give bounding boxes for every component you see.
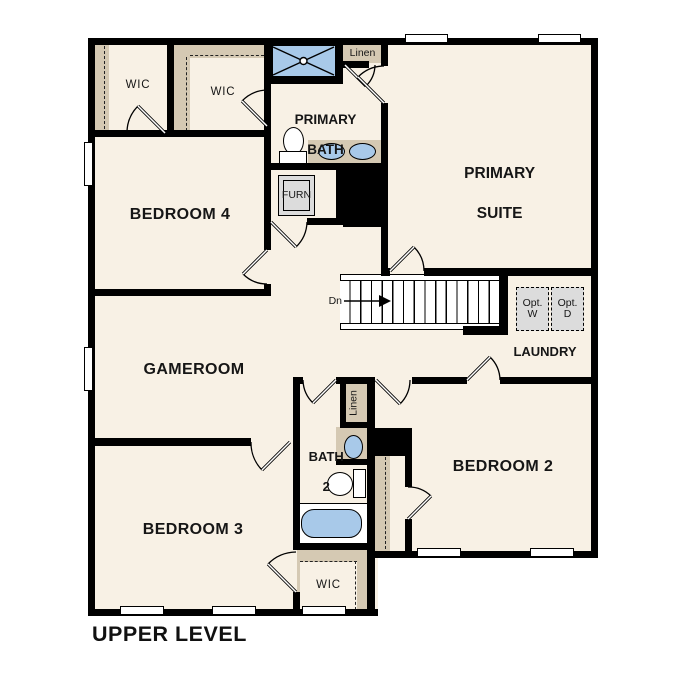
primary-suite-label: PRIMARY SUITE — [411, 144, 571, 244]
bathtub — [301, 509, 362, 538]
bath2-sink — [344, 435, 363, 459]
bedroom4-label: BEDROOM 4 — [100, 206, 260, 224]
primary-suite-line1: PRIMARY — [464, 165, 535, 182]
wall — [343, 61, 369, 68]
wall — [293, 543, 375, 550]
wic2-shelf-left — [174, 44, 190, 132]
wall — [381, 103, 388, 268]
wic2-label: WIC — [195, 86, 251, 98]
primary-bath-label: PRIMARY BATH — [268, 97, 368, 172]
bedroom2-closet-block — [371, 428, 412, 456]
wall — [405, 519, 412, 552]
wall — [381, 38, 388, 66]
bath2-label: BATH 2 — [294, 434, 344, 509]
window — [212, 606, 256, 615]
wall — [463, 326, 508, 335]
wall — [500, 377, 598, 384]
window — [405, 34, 448, 43]
wall — [367, 377, 375, 616]
furnace-label: FURN — [278, 189, 315, 201]
window — [417, 548, 461, 557]
wall — [264, 77, 343, 84]
toilet-bath2-tank — [353, 469, 366, 498]
wic3-shelf-line-top — [300, 561, 357, 562]
wall — [405, 453, 412, 487]
opt-w-line2: W — [528, 309, 538, 321]
window — [538, 34, 581, 43]
primary-suite-line2: SUITE — [477, 205, 523, 222]
wall — [88, 289, 271, 296]
wall — [336, 170, 343, 222]
wall — [499, 276, 508, 331]
wic2-shelf-line-left — [186, 57, 187, 131]
window — [84, 142, 93, 186]
window — [530, 548, 574, 557]
floor-plan: FURN Opt. W Opt. D Dn — [0, 0, 687, 687]
bath2-line1: BATH — [309, 449, 344, 464]
wall — [412, 377, 467, 384]
window — [302, 606, 346, 615]
wic1-label: WIC — [110, 79, 166, 91]
optional-dryer-box: Opt. D — [551, 287, 584, 331]
linen-hall-label: Linen — [348, 381, 368, 426]
wall — [88, 38, 598, 45]
stairs-treads — [340, 281, 499, 323]
window — [84, 347, 93, 391]
wic1-shelf — [95, 44, 109, 132]
wic3-label: WIC — [300, 579, 357, 591]
wall — [307, 218, 343, 225]
primary-bath-line1: PRIMARY — [295, 112, 357, 127]
bedroom3-label: BEDROOM 3 — [113, 521, 273, 539]
wall — [95, 130, 271, 137]
wall — [88, 38, 95, 616]
wall — [381, 268, 390, 276]
gameroom-label: GAMEROOM — [114, 361, 274, 379]
wall — [88, 438, 251, 446]
window — [120, 606, 164, 615]
bedroom2-closet-line — [385, 457, 386, 549]
opt-d-line2: D — [564, 309, 572, 321]
wic2-shelf-line-top — [190, 55, 264, 56]
optional-washer-box: Opt. W — [516, 287, 549, 331]
wall — [591, 38, 598, 558]
wic1-shelf-line — [104, 46, 105, 129]
wall — [424, 268, 598, 276]
primary-bath-line2: BATH — [307, 142, 344, 157]
stairs-dn-label: Dn — [316, 295, 342, 307]
wall — [167, 44, 174, 137]
linen-top-label: Linen — [343, 47, 382, 59]
bath2-line2: 2 — [323, 479, 330, 494]
wall — [293, 592, 300, 616]
laundry-label: LAUNDRY — [502, 344, 588, 359]
page-title: UPPER LEVEL — [92, 622, 247, 647]
bedroom2-label: BEDROOM 2 — [423, 458, 583, 476]
shower — [271, 44, 337, 78]
